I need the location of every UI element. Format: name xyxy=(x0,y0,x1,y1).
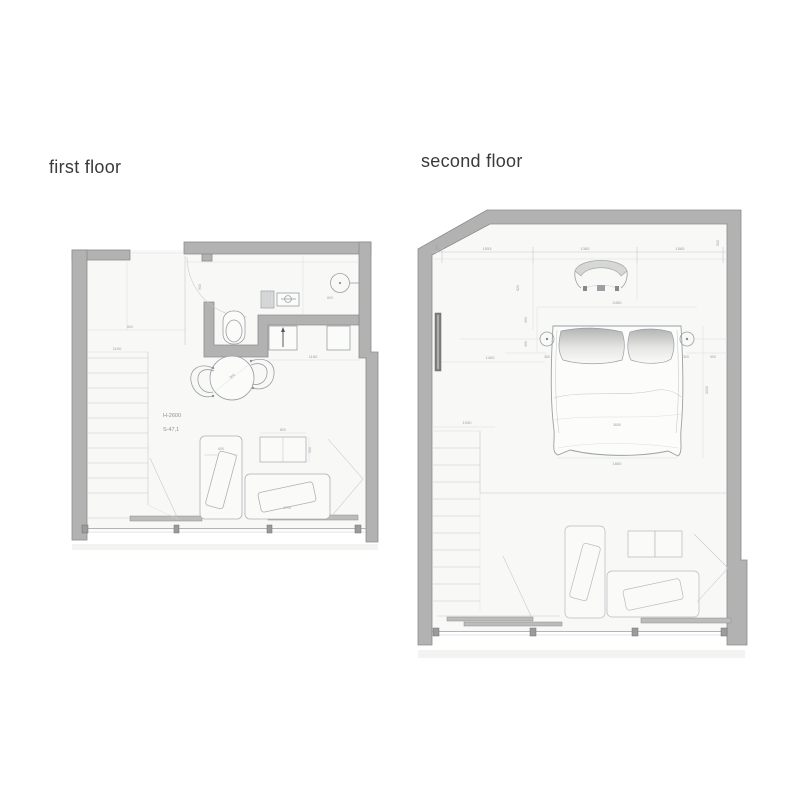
dim-label: 200 xyxy=(524,317,528,323)
pillow-right-icon xyxy=(628,329,674,363)
dim-label: 600 xyxy=(218,447,224,451)
ceiling-height-label: H-2600 xyxy=(163,413,181,419)
wall-radiator xyxy=(435,313,441,371)
dim-label: 1365 xyxy=(581,246,591,251)
first-floor-title: first floor xyxy=(49,157,121,178)
dim-label: 360 xyxy=(544,355,550,359)
dim-label: 1160 xyxy=(309,354,318,359)
floor-area-label: S-47,1 xyxy=(163,427,179,433)
pillow-left-icon xyxy=(559,328,624,364)
dim-label: 300 xyxy=(683,355,689,359)
dim-label: 1030 xyxy=(463,420,473,425)
dim-label: 600 xyxy=(327,296,333,300)
dim-label: 2450 xyxy=(613,300,623,305)
washing-machine-icon xyxy=(261,291,274,308)
dim-label: 600 xyxy=(127,325,133,329)
second-floor-title: second floor xyxy=(421,151,523,172)
kitchen-appliance xyxy=(327,326,350,350)
dim-label: 900 xyxy=(710,355,716,359)
dim-label: 1565 xyxy=(676,246,686,251)
first-floor-plan: H-2600 S-47,1 1100 600 900 600 1160 900 … xyxy=(55,225,385,550)
dim-label: 3650 xyxy=(613,423,621,427)
dim-label: 1400 xyxy=(486,355,496,360)
dim-label: 400 xyxy=(524,341,528,347)
dim-label: 1850 xyxy=(613,461,623,466)
dim-label: 620 xyxy=(516,285,520,291)
dim-label: 500 xyxy=(308,447,312,453)
side-table xyxy=(628,531,655,557)
dim-label: 2000 xyxy=(705,386,709,394)
dim-label: 900 xyxy=(198,284,202,290)
dim-label: 500 xyxy=(716,240,720,246)
dim-label: 1553 xyxy=(483,246,493,251)
dim-label: 800 xyxy=(280,428,286,432)
sink-icon xyxy=(277,293,299,306)
floor-plan-page: first floor second floor xyxy=(0,0,800,800)
bed xyxy=(540,326,694,456)
dim-label: 420 xyxy=(435,244,439,250)
dim-label: 1100 xyxy=(113,346,122,351)
second-floor-plan: 1553 1365 1565 420 500 1400 1030 2450 18… xyxy=(405,195,755,660)
dim-label: 1700 xyxy=(283,506,291,510)
